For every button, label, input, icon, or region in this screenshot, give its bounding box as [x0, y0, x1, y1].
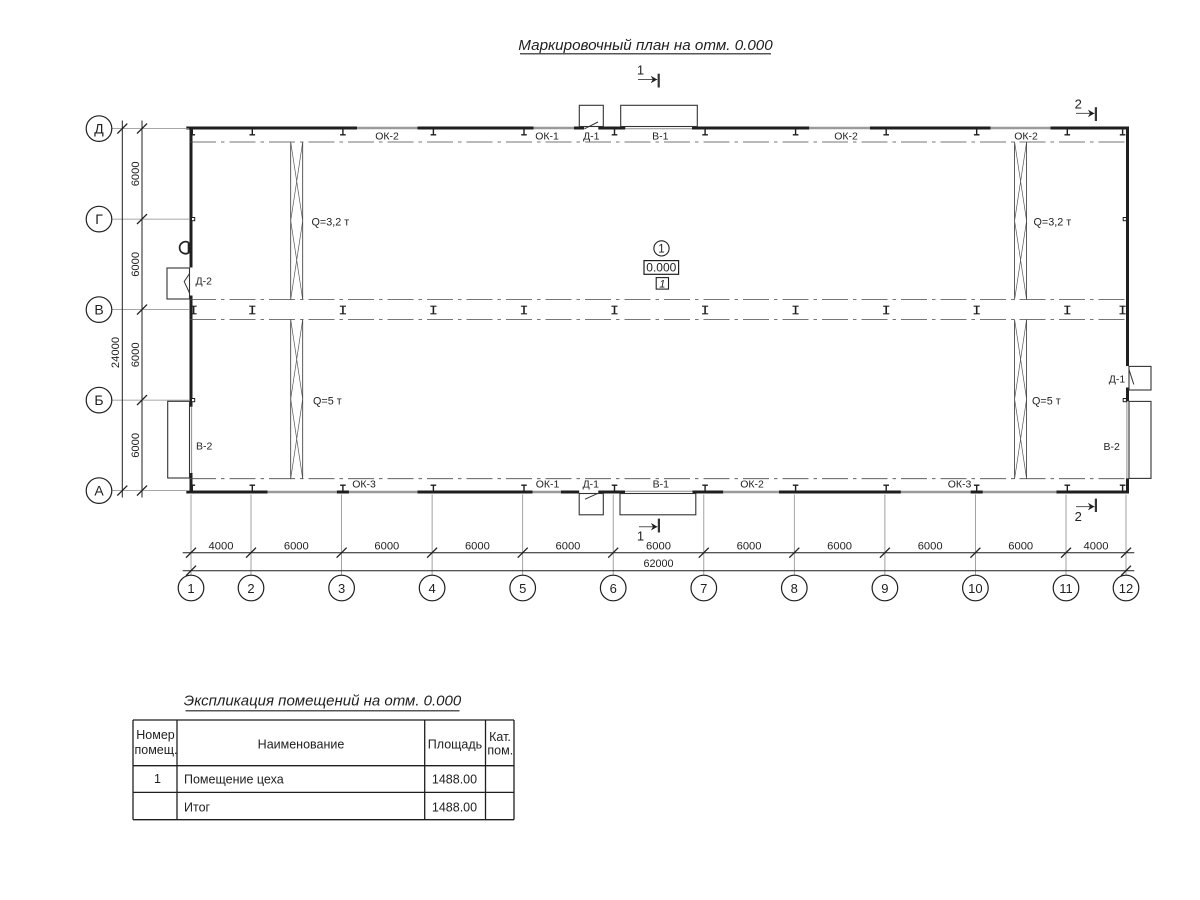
- svg-text:В: В: [94, 302, 103, 318]
- svg-text:4000: 4000: [1084, 541, 1109, 553]
- svg-text:4: 4: [428, 581, 435, 596]
- svg-text:ОК-3: ОК-3: [948, 478, 972, 490]
- svg-text:1: 1: [637, 529, 644, 544]
- svg-text:1: 1: [658, 244, 664, 256]
- svg-text:Б: Б: [94, 392, 103, 408]
- svg-text:1: 1: [637, 63, 644, 78]
- svg-text:Д-1: Д-1: [1109, 374, 1126, 386]
- svg-text:6000: 6000: [1008, 541, 1033, 553]
- svg-text:0.000: 0.000: [646, 261, 676, 275]
- svg-text:6000: 6000: [556, 541, 581, 553]
- svg-text:пом.: пом.: [487, 743, 513, 757]
- svg-text:В-1: В-1: [652, 130, 669, 142]
- svg-text:Д: Д: [94, 121, 104, 137]
- svg-text:Маркировочный план на отм. 0.0: Маркировочный план на отм. 0.000: [518, 37, 773, 54]
- svg-text:А: А: [94, 483, 104, 499]
- svg-text:10: 10: [968, 581, 982, 596]
- svg-text:6000: 6000: [130, 433, 142, 458]
- svg-text:ОК-3: ОК-3: [352, 478, 376, 490]
- svg-text:Д-2: Д-2: [196, 276, 213, 288]
- svg-text:3: 3: [338, 581, 345, 596]
- svg-text:6000: 6000: [646, 541, 671, 553]
- svg-text:62000: 62000: [643, 558, 673, 570]
- svg-text:Экспликация помещений на отм.: Экспликация помещений на отм. 0.000: [184, 692, 462, 709]
- svg-text:4000: 4000: [209, 541, 234, 553]
- svg-text:Площадь: Площадь: [428, 737, 482, 751]
- svg-text:ОК-1: ОК-1: [536, 478, 560, 490]
- svg-text:1: 1: [187, 581, 194, 596]
- svg-text:Q=3,2 т: Q=3,2 т: [1034, 217, 1072, 229]
- svg-text:В-2: В-2: [1104, 441, 1121, 453]
- svg-text:6: 6: [610, 581, 617, 596]
- svg-text:2: 2: [247, 581, 254, 596]
- svg-text:ОК-2: ОК-2: [740, 478, 764, 490]
- svg-text:6000: 6000: [918, 541, 943, 553]
- svg-text:Д-1: Д-1: [583, 130, 600, 142]
- svg-text:ОК-2: ОК-2: [375, 130, 399, 142]
- svg-text:Q=3,2 т: Q=3,2 т: [312, 217, 350, 229]
- svg-text:ОК-1: ОК-1: [535, 130, 559, 142]
- svg-text:Q=5 т: Q=5 т: [1032, 396, 1061, 408]
- svg-text:1: 1: [154, 772, 161, 786]
- svg-text:Q=5 т: Q=5 т: [313, 396, 342, 408]
- svg-text:В-2: В-2: [196, 441, 213, 453]
- svg-text:7: 7: [700, 581, 707, 596]
- svg-text:Д-1: Д-1: [583, 478, 600, 490]
- svg-text:Кат.: Кат.: [489, 730, 511, 744]
- svg-text:6000: 6000: [130, 161, 142, 186]
- svg-text:ОК-2: ОК-2: [834, 130, 858, 142]
- svg-text:6000: 6000: [374, 541, 399, 553]
- svg-text:1: 1: [659, 278, 665, 290]
- svg-text:24000: 24000: [110, 337, 122, 368]
- svg-text:6000: 6000: [130, 342, 142, 367]
- svg-text:2: 2: [1075, 509, 1082, 524]
- svg-text:11: 11: [1059, 581, 1073, 596]
- svg-text:Итог: Итог: [184, 800, 211, 814]
- svg-text:6000: 6000: [130, 252, 142, 277]
- svg-text:6000: 6000: [827, 541, 852, 553]
- svg-text:2: 2: [1075, 96, 1082, 111]
- svg-text:6000: 6000: [284, 541, 309, 553]
- svg-text:В-1: В-1: [653, 478, 670, 490]
- svg-text:6000: 6000: [737, 541, 762, 553]
- svg-text:помещ.: помещ.: [134, 743, 177, 757]
- svg-text:9: 9: [881, 581, 888, 596]
- svg-text:Наименование: Наименование: [258, 737, 345, 751]
- svg-text:1488.00: 1488.00: [432, 800, 477, 814]
- svg-text:8: 8: [791, 581, 798, 596]
- svg-text:6000: 6000: [465, 541, 490, 553]
- svg-text:Помещение цеха: Помещение цеха: [184, 772, 284, 786]
- svg-text:ОК-2: ОК-2: [1014, 130, 1038, 142]
- svg-text:Номер: Номер: [136, 728, 175, 742]
- svg-text:Г: Г: [95, 211, 103, 227]
- svg-text:1488.00: 1488.00: [432, 772, 477, 786]
- svg-text:12: 12: [1119, 581, 1133, 596]
- svg-text:5: 5: [519, 581, 526, 596]
